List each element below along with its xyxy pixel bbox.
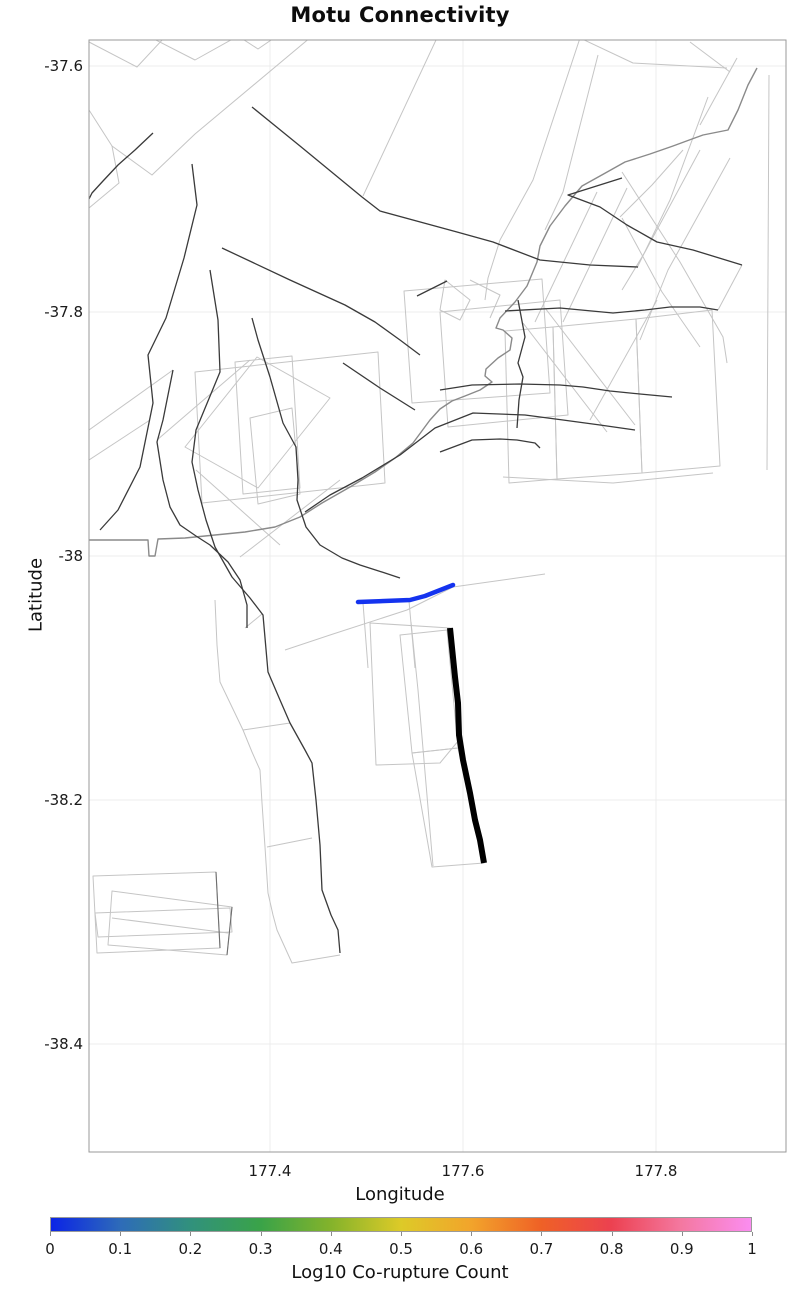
fault-surface-outline	[370, 623, 459, 765]
fault-surface-edge	[89, 146, 119, 208]
y-tick-label: -37.8	[44, 303, 83, 321]
x-tick-label: 177.8	[635, 1162, 678, 1180]
colorbar-tick-label: 0	[45, 1240, 55, 1258]
x-axis-label: Longitude	[0, 1184, 800, 1205]
colorbar-tick-mark	[331, 1232, 332, 1236]
colorbar-tick-mark	[50, 1232, 51, 1236]
colorbar-tick-label: 0.3	[249, 1240, 273, 1258]
fault-surface-edge	[622, 150, 700, 290]
colorbar-tick-mark	[541, 1232, 542, 1236]
fault-trace	[305, 413, 635, 512]
colorbar-tick-mark	[682, 1232, 683, 1236]
colorbar-tick-label: 0.1	[108, 1240, 132, 1258]
colorbar-tick-label: 0.2	[178, 1240, 202, 1258]
fault-trace	[192, 270, 340, 953]
fault-surface-edge	[267, 838, 312, 847]
fault-surface-outline	[95, 908, 232, 937]
fault-surface-edge	[363, 603, 368, 668]
colorbar-label: Log10 Co-rupture Count	[0, 1262, 800, 1283]
fault-surface-edge	[767, 75, 769, 470]
colorbar-tick-label: 0.4	[319, 1240, 343, 1258]
fault-trace	[568, 178, 742, 265]
fault-trace	[252, 107, 638, 267]
fault-trace	[100, 164, 197, 530]
map-plot-area	[89, 36, 786, 1152]
y-tick-label: -38	[59, 547, 84, 565]
colorbar-tick-label: 0.6	[459, 1240, 483, 1258]
fault-surface-edge	[622, 218, 700, 347]
fault-trace	[440, 384, 672, 397]
colorbar-tick-label: 0.7	[529, 1240, 553, 1258]
colorbar-tick-mark	[471, 1232, 472, 1236]
fault-surface-edge	[718, 265, 742, 310]
y-axis-label: Latitude	[26, 535, 47, 655]
fault-surface-outline	[108, 891, 232, 955]
page-title: Motu Connectivity	[0, 3, 800, 27]
colorbar-tick-mark	[752, 1232, 753, 1236]
fault-surface-outline	[235, 356, 300, 494]
fault-surface-edge	[485, 38, 580, 300]
fault-surface-edge	[637, 97, 708, 268]
fault-surface-outline	[185, 357, 330, 488]
colorbar-tick-mark	[612, 1232, 613, 1236]
fault-surface-edge	[545, 308, 635, 425]
fault-trace	[222, 248, 420, 355]
fault-trace	[89, 133, 153, 199]
fault-surface-outline	[250, 408, 300, 504]
colorbar-tick-label: 0.9	[670, 1240, 694, 1258]
colorbar-tick-mark	[120, 1232, 121, 1236]
fault-surface-outline	[553, 319, 642, 479]
colorbar-tick-mark	[401, 1232, 402, 1236]
co-rupture-min-segment	[358, 585, 453, 602]
fault-surface-edge	[243, 723, 290, 730]
plot-border	[89, 40, 786, 1152]
fault-surface-edge	[700, 58, 737, 125]
fault-surface-outline	[636, 310, 720, 473]
fault-surface-edge	[285, 574, 545, 650]
figure: Motu Connectivity 177.4177.6177.8 -37.6-…	[0, 0, 800, 1298]
fault-surface-edge	[535, 192, 597, 322]
colorbar-tick-mark	[190, 1232, 191, 1236]
colorbar-tick-label: 0.5	[389, 1240, 413, 1258]
fault-surface-edge	[613, 473, 713, 483]
fault-surface-edge	[89, 370, 173, 430]
fault-surface-edge	[89, 38, 164, 67]
y-tick-label: -38.4	[44, 1035, 83, 1053]
fault-surface-outline	[505, 327, 557, 483]
y-tick-label: -38.2	[44, 791, 83, 809]
colorbar-tick-mark	[261, 1232, 262, 1236]
colorbar-gradient	[50, 1217, 752, 1232]
map-canvas	[0, 0, 800, 1298]
fault-surface-edge	[409, 601, 415, 668]
fault-trace	[517, 300, 525, 428]
colorbar-tick-label: 0.8	[600, 1240, 624, 1258]
fault-surface-edge	[590, 300, 657, 420]
fault-edge	[227, 907, 232, 955]
fault-surface-edge	[89, 420, 150, 460]
fault-surface-edge	[363, 40, 436, 196]
fault-surface-edge	[240, 480, 340, 557]
colorbar-tick-label: 1	[747, 1240, 757, 1258]
fault-surface-edge	[196, 470, 280, 545]
x-tick-label: 177.4	[249, 1162, 292, 1180]
y-tick-label: -37.6	[44, 57, 83, 75]
fault-edge	[216, 872, 220, 948]
fault-surface-edge	[563, 188, 627, 322]
fault-surface-edge	[215, 600, 340, 963]
fault-surface-edge	[112, 918, 228, 933]
fault-trace	[440, 439, 540, 452]
x-tick-label: 177.6	[442, 1162, 485, 1180]
